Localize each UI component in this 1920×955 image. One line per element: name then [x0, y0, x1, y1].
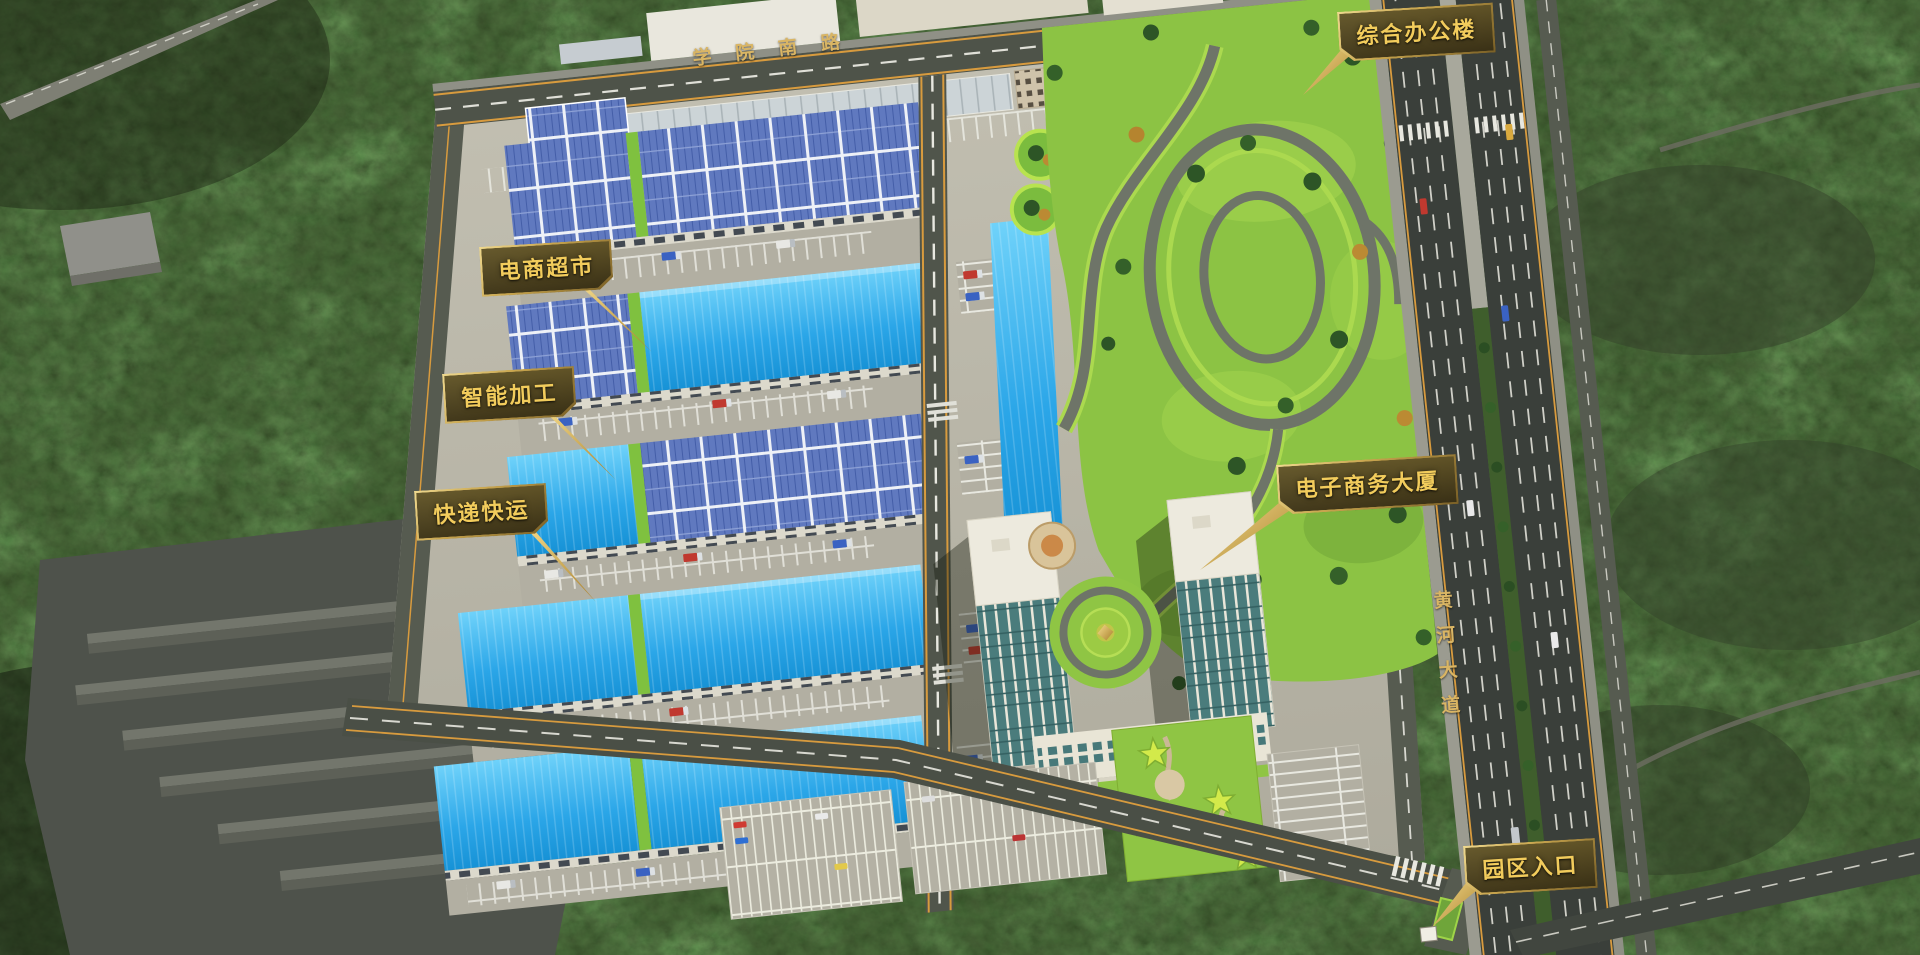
callout-express-delivery[interactable]: 快递快运 [414, 483, 549, 541]
callout-office-building[interactable]: 综合办公楼 [1337, 2, 1496, 61]
callout-ecommerce-supermarket[interactable]: 电商超市 [479, 239, 614, 297]
warehouse-solar-roof [504, 133, 636, 250]
callout-park-entrance[interactable]: 园区入口 [1463, 838, 1598, 896]
callout-label: 智能加工 [444, 368, 575, 422]
crosswalk [927, 401, 959, 422]
callout-label: 园区入口 [1465, 840, 1596, 894]
callout-label: 综合办公楼 [1339, 5, 1494, 60]
site-plan-rendering [0, 0, 1920, 955]
callout-label: 快递快运 [416, 485, 547, 539]
callout-label: 电商超市 [481, 241, 612, 295]
callout-smart-processing[interactable]: 智能加工 [442, 366, 577, 424]
callout-label: 电子商务大厦 [1278, 456, 1456, 513]
site-plan: 综合办公楼 电商超市 智能加工 快递快运 电子商务大厦 园区入口 学院南路 黄河… [0, 0, 1920, 955]
